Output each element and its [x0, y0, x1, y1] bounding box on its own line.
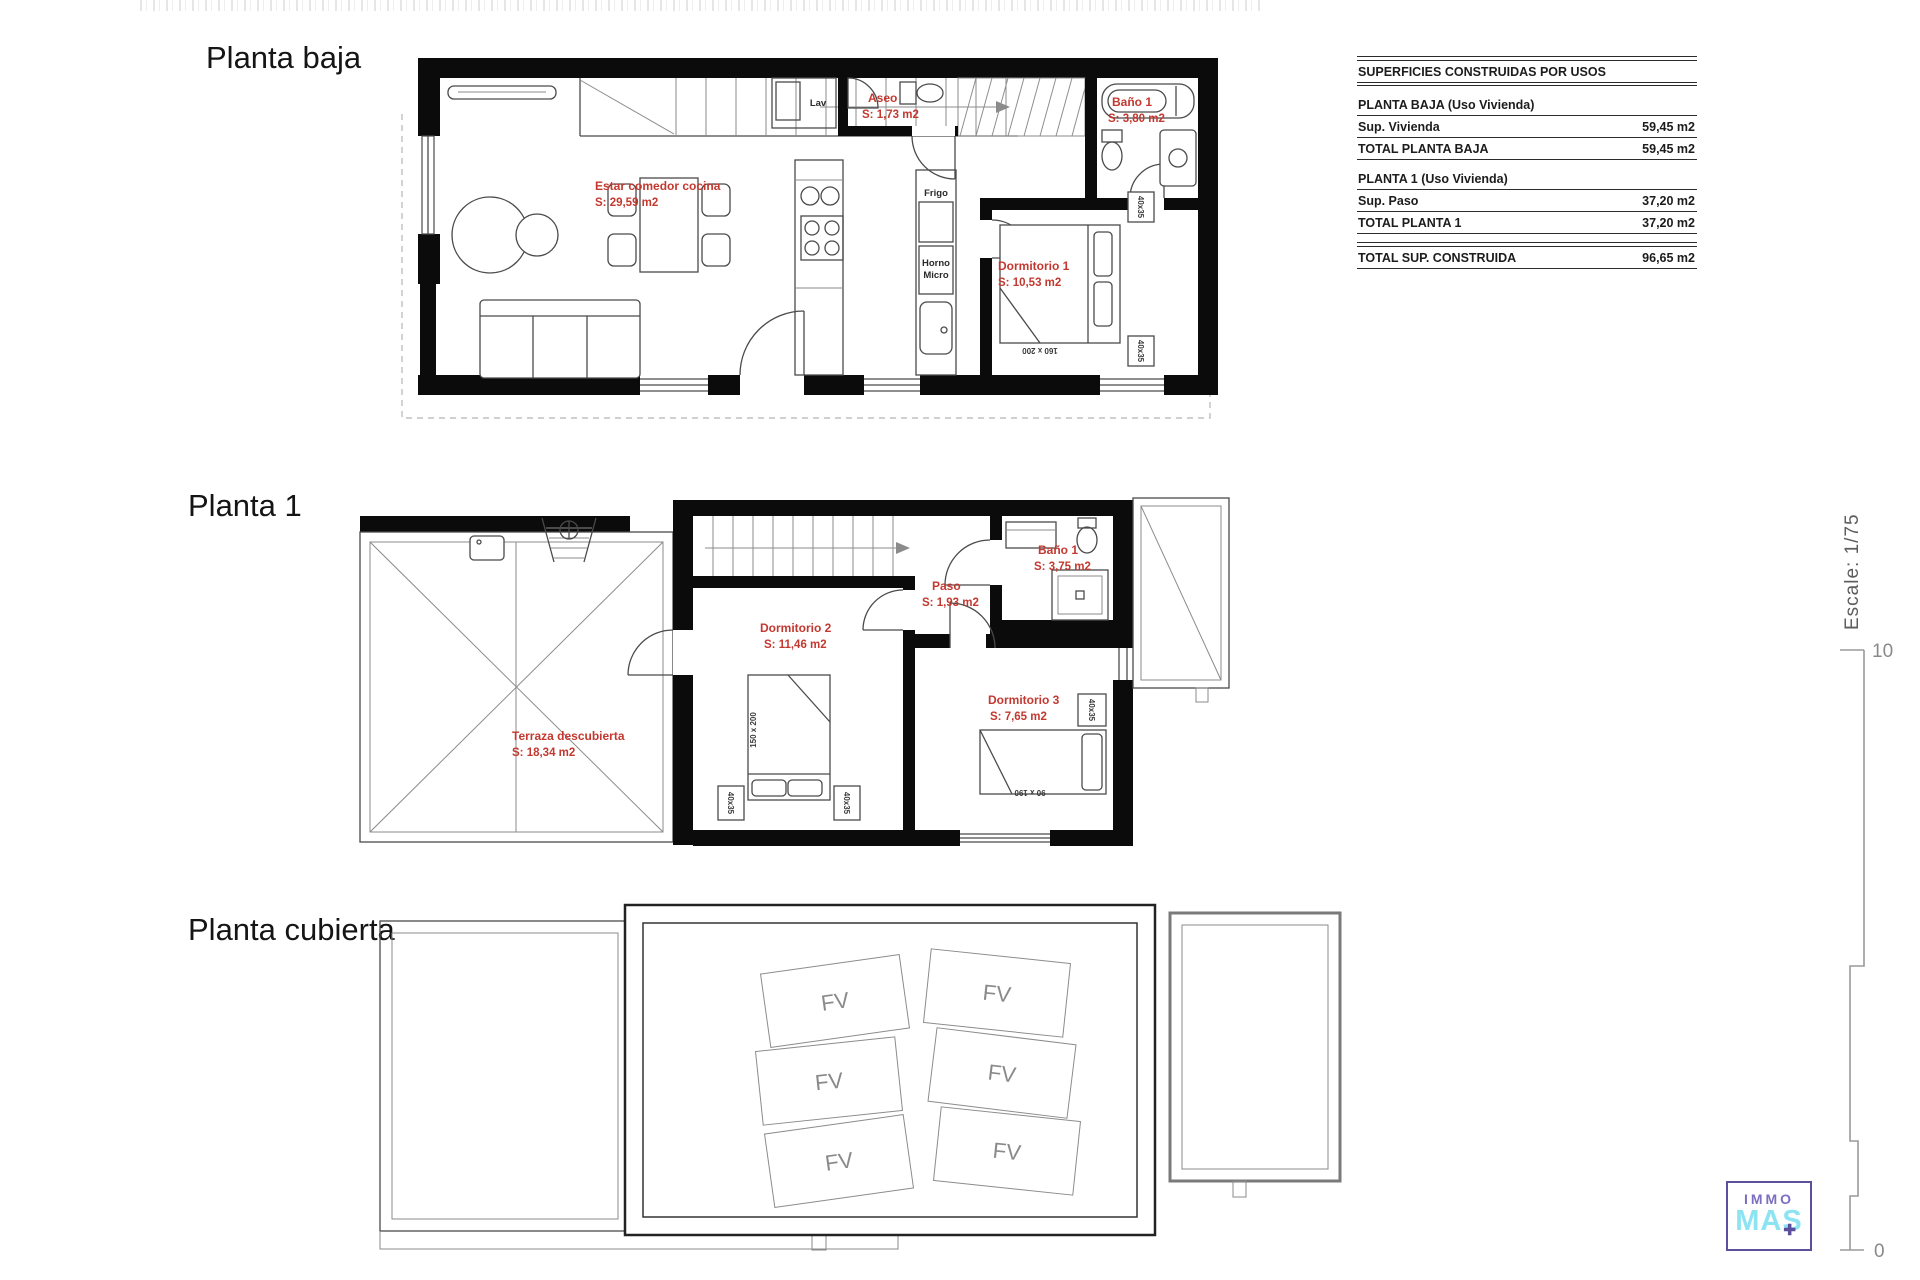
window	[1100, 375, 1164, 395]
total-label: TOTAL PLANTA BAJA	[1358, 142, 1489, 156]
svg-text:FV: FV	[986, 1059, 1017, 1087]
svg-text:Baño 1: Baño 1	[1112, 95, 1152, 109]
svg-text:Dormitorio 2: Dormitorio 2	[760, 621, 832, 635]
fridge	[919, 202, 953, 242]
bed-dimension-label: 150 x 200	[749, 712, 758, 748]
table-row: TOTAL PLANTA BAJA 59,45 m2	[1357, 138, 1697, 159]
table-row: Sup. Vivienda 59,45 m2	[1357, 116, 1697, 137]
svg-text:Paso: Paso	[932, 579, 961, 593]
svg-text:Dormitorio 1: Dormitorio 1	[998, 259, 1070, 273]
logo-line-immo: IMMO	[1728, 1192, 1810, 1206]
floor-title-planta-baja: Planta baja	[206, 40, 361, 76]
kitchen-sink	[920, 302, 952, 354]
window	[864, 375, 920, 395]
graphic-scale-bar: 10 0	[1834, 636, 1904, 1276]
table-row: TOTAL PLANTA 1 37,20 m2	[1357, 212, 1697, 233]
nightstand: 40x35	[718, 786, 744, 820]
terrace-door-arc	[628, 630, 673, 675]
main-roof-outline	[625, 905, 1155, 1235]
kitchen-counter	[795, 160, 843, 375]
row-value: 59,45 m2	[1642, 120, 1695, 134]
adjacent-roof	[1133, 498, 1229, 702]
kitchen-appliance-column: Frigo Horno Micro	[916, 170, 956, 375]
row-value: 37,20 m2	[1642, 194, 1695, 208]
toilet	[1077, 518, 1097, 553]
scale-bottom-value: 0	[1874, 1241, 1885, 1262]
svg-text:Baño 1: Baño 1	[1038, 543, 1078, 557]
svg-text:S: 1,93 m2: S: 1,93 m2	[922, 597, 979, 609]
bed-dimension-label: 160 x 200	[1022, 346, 1058, 355]
nightstand: 40x35	[1078, 694, 1106, 726]
total-label: TOTAL PLANTA 1	[1358, 216, 1461, 230]
svg-text:FV: FV	[819, 987, 851, 1016]
stair-direction-arrow	[996, 101, 1010, 113]
row-label: Sup. Paso	[1358, 194, 1418, 208]
plan-planta-baja: Lav	[340, 30, 1280, 430]
toilet	[917, 84, 943, 102]
room-label-paso: Paso S: 1,93 m2	[922, 579, 979, 609]
immo-mas-logo: IMMO MAS ✚	[1726, 1181, 1812, 1251]
terrace-sink	[470, 536, 504, 560]
window	[640, 375, 708, 395]
total-value: 59,45 m2	[1642, 142, 1695, 156]
window	[422, 136, 434, 234]
svg-text:FV: FV	[992, 1138, 1023, 1166]
room-label-dormitorio2: Dormitorio 2 S: 11,46 m2	[760, 621, 832, 651]
section-header: PLANTA BAJA (Uso Vivienda)	[1358, 98, 1534, 112]
svg-text:S: 29,59 m2: S: 29,59 m2	[595, 197, 658, 209]
lav-label: Lav	[810, 98, 827, 109]
section-header: PLANTA 1 (Uso Vivienda)	[1358, 172, 1508, 186]
svg-text:40x35: 40x35	[1087, 699, 1096, 722]
svg-text:40x35: 40x35	[842, 792, 851, 815]
svg-text:40x35: 40x35	[726, 792, 735, 815]
floor-title-planta-1: Planta 1	[188, 488, 302, 524]
room-label-bano1: Baño 1 S: 3,75 m2	[1034, 543, 1091, 573]
scale-top-value: 10	[1872, 641, 1893, 662]
svg-text:S: 11,46 m2: S: 11,46 m2	[764, 639, 827, 651]
svg-text:FV: FV	[823, 1147, 855, 1176]
tv-cabinet	[448, 86, 556, 99]
svg-text:S: 7,65 m2: S: 7,65 m2	[990, 711, 1047, 723]
terrace: Terraza descubierta S: 18,34 m2	[360, 516, 673, 842]
svg-text:40x35: 40x35	[1136, 196, 1145, 219]
bed-dimension-label: 90 x 190	[1014, 788, 1046, 797]
room-label-dormitorio3: Dormitorio 3 S: 7,65 m2	[988, 693, 1060, 723]
shower	[1052, 570, 1108, 620]
svg-text:S: 1,73 m2: S: 1,73 m2	[862, 109, 919, 121]
surface-areas-table: SUPERFICIES CONSTRUIDAS POR USOS PLANTA …	[1357, 56, 1697, 269]
adjacent-roof-outline	[1170, 913, 1340, 1197]
total-value: 37,20 m2	[1642, 216, 1695, 230]
logo-plus-icon: ✚	[1783, 1223, 1797, 1238]
washbasin-cabinet	[1160, 130, 1196, 186]
room-label-aseo: Aseo S: 1,73 m2	[862, 91, 919, 121]
nightstand: 40x35	[834, 786, 860, 820]
grand-total-value: 96,65 m2	[1642, 251, 1695, 265]
door-arc-dormitorio2	[863, 590, 903, 630]
svg-text:S: 3,75 m2: S: 3,75 m2	[1034, 561, 1091, 573]
grand-total-label: TOTAL SUP. CONSTRUIDA	[1358, 251, 1516, 265]
stair-direction-arrow	[896, 542, 910, 554]
stairs	[693, 516, 915, 580]
table-row: Sup. Paso 37,20 m2	[1357, 190, 1697, 211]
plan-planta-1: Terraza descubierta S: 18,34 m2	[340, 490, 1340, 860]
scale-label: Escale: 1/75	[1842, 416, 1864, 630]
nightstand: 40x35	[1128, 336, 1154, 366]
svg-text:40x35: 40x35	[1136, 340, 1145, 363]
cropped-drawing-edge	[140, 0, 1260, 11]
plan-planta-cubierta: FV FV FV FV FV FV	[340, 893, 1350, 1253]
round-table	[452, 197, 558, 273]
micro-label: Micro	[923, 270, 949, 281]
room-label-terraza-area: S: 18,34 m2	[512, 747, 575, 759]
nightstand: 40x35	[1128, 192, 1154, 222]
svg-text:S: 10,53 m2: S: 10,53 m2	[998, 277, 1061, 289]
svg-text:FV: FV	[982, 980, 1013, 1008]
bed-dormitorio-3: 90 x 190	[980, 730, 1106, 797]
svg-text:Aseo: Aseo	[868, 91, 897, 105]
svg-text:S: 3,80 m2: S: 3,80 m2	[1108, 113, 1165, 125]
row-label: Sup. Vivienda	[1358, 120, 1440, 134]
frigo-label: Frigo	[924, 188, 948, 199]
table-title: SUPERFICIES CONSTRUIDAS POR USOS	[1358, 65, 1606, 79]
logo-line-mas: MAS ✚	[1728, 1206, 1810, 1236]
table-row: TOTAL SUP. CONSTRUIDA 96,65 m2	[1357, 247, 1697, 268]
door-arc-aseo	[912, 136, 955, 179]
drawing-sheet: Planta baja Planta 1 Planta cubierta	[0, 0, 1920, 1280]
toilet-tank	[900, 82, 916, 104]
table-rule	[1357, 268, 1697, 269]
svg-text:Estar comedor cocina: Estar comedor cocina	[595, 179, 721, 193]
svg-text:FV: FV	[814, 1068, 845, 1096]
bed-dormitorio-2: 150 x 200	[748, 675, 830, 800]
sofa	[480, 300, 640, 378]
horno-label: Horno	[922, 258, 950, 269]
svg-text:Dormitorio 3: Dormitorio 3	[988, 693, 1060, 707]
room-label-terraza-name: Terraza descubierta	[512, 729, 625, 743]
bed-dormitorio-1: 160 x 200	[1000, 225, 1120, 355]
toilet	[1102, 130, 1122, 170]
